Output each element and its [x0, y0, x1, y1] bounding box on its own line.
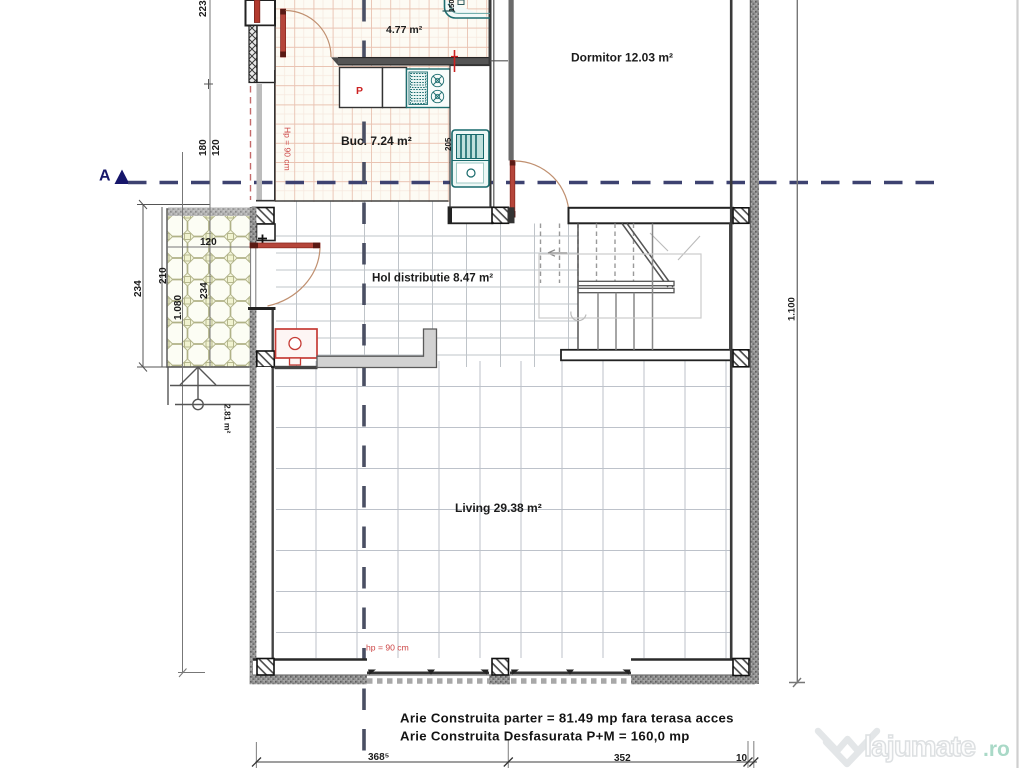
svg-text:lajumate: lajumate: [864, 731, 976, 763]
svg-text:Hp = 90 cm: Hp = 90 cm: [283, 127, 293, 171]
svg-text:2.81 m²: 2.81 m²: [223, 404, 233, 433]
svg-text:368⁵: 368⁵: [368, 752, 390, 763]
svg-text:120: 120: [200, 237, 217, 248]
svg-text:4.77 m²: 4.77 m²: [386, 24, 423, 36]
svg-text:Arie Construita Desfasurata P+: Arie Construita Desfasurata P+M = 160,0 …: [400, 729, 690, 744]
svg-text:Buc. 7.24 m²: Buc. 7.24 m²: [341, 134, 412, 148]
svg-text:Hol distributie 8.47 m²: Hol distributie 8.47 m²: [372, 272, 493, 285]
svg-text:Arie Construita parter = 81.49: Arie Construita parter = 81.49 mp fara t…: [400, 711, 734, 726]
svg-text:Living 29.38 m²: Living 29.38 m²: [455, 501, 542, 515]
svg-text:210: 210: [158, 267, 169, 284]
svg-text:Dormitor 12.03 m²: Dormitor 12.03 m²: [571, 51, 673, 65]
svg-text:205: 205: [444, 137, 453, 151]
svg-text:120: 120: [211, 139, 222, 156]
svg-text:352: 352: [614, 753, 631, 764]
svg-text:1.100: 1.100: [787, 297, 798, 321]
svg-text:150: 150: [447, 0, 456, 12]
svg-text:234: 234: [133, 280, 144, 297]
svg-text:223: 223: [198, 0, 209, 17]
svg-text:234: 234: [199, 282, 210, 299]
svg-text:.ro: .ro: [983, 738, 1010, 761]
svg-text:1.080: 1.080: [173, 295, 184, 320]
svg-text:180: 180: [198, 139, 209, 156]
svg-text:P: P: [356, 85, 363, 97]
svg-text:hp = 90 cm: hp = 90 cm: [366, 643, 409, 653]
svg-text:A: A: [99, 168, 111, 185]
svg-text:10: 10: [736, 753, 748, 764]
